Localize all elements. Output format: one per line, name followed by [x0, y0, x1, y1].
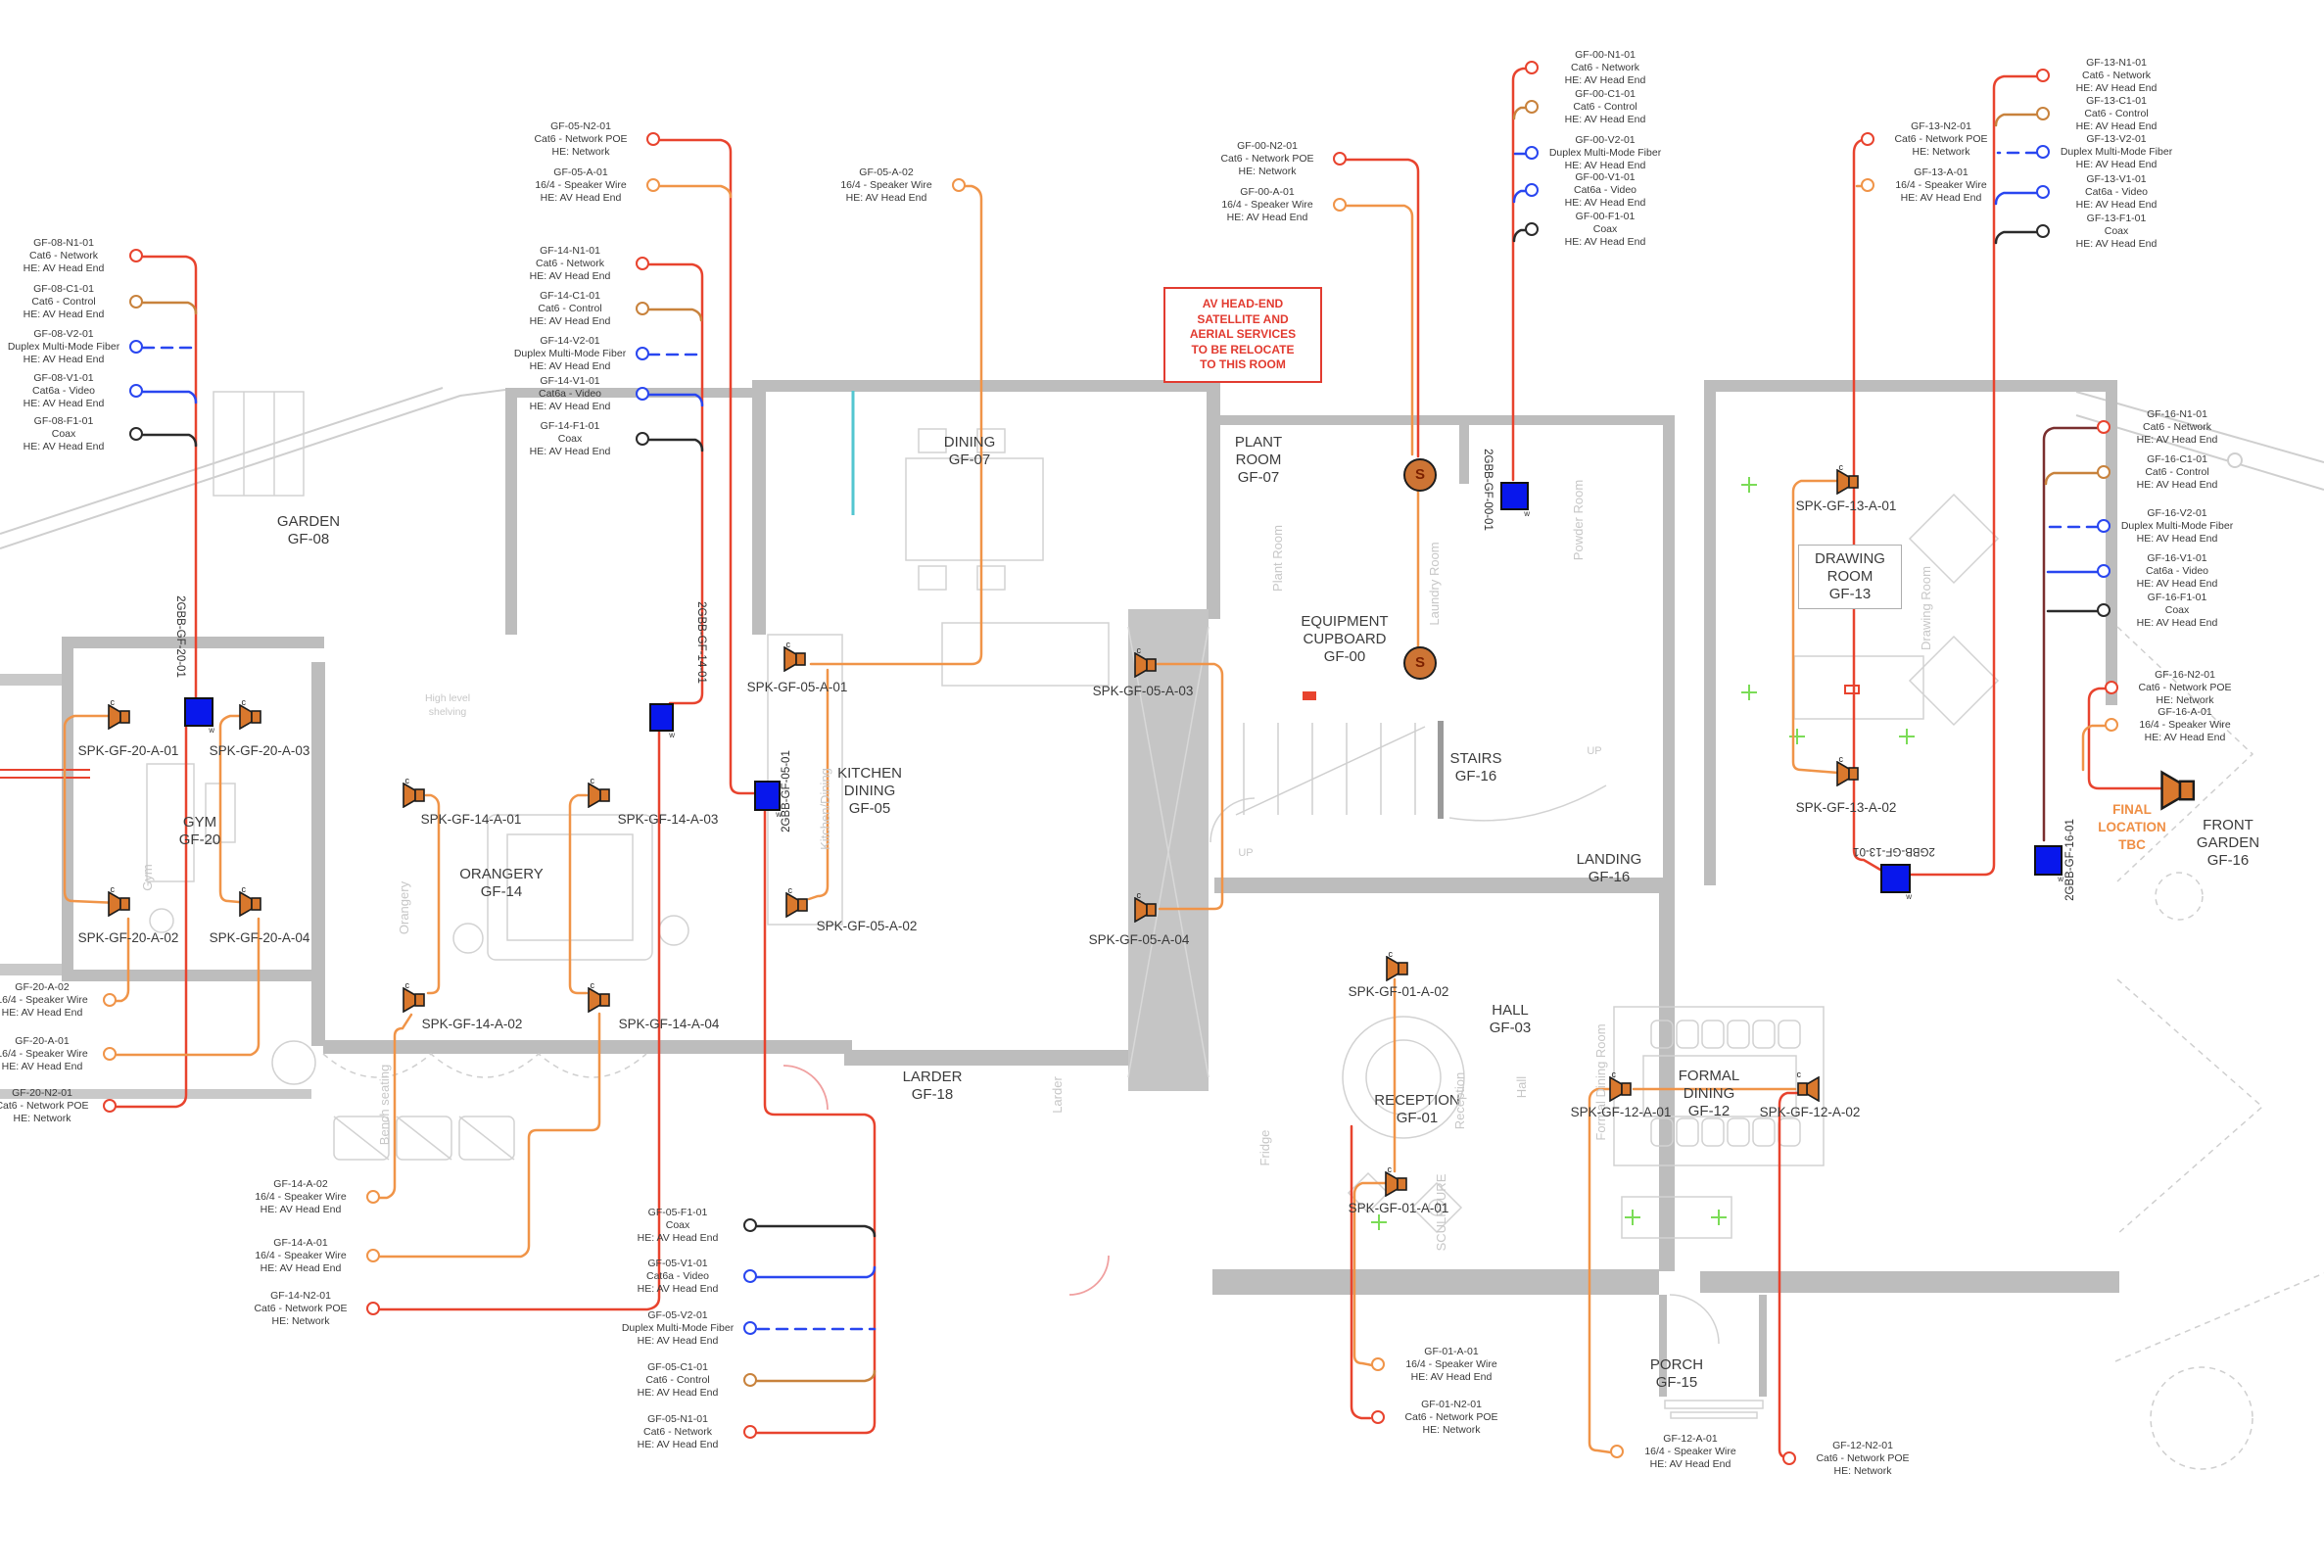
cable-terminal-icon [1861, 178, 1874, 192]
cable-terminal-icon [1525, 100, 1539, 114]
cable-callout[interactable]: GF-16-C1-01Cat6 - ControlHE: AV Head End [2112, 453, 2242, 492]
cable-callout[interactable]: GF-13-A-0116/4 - Speaker WireHE: AV Head… [1876, 166, 2006, 205]
cable-callout[interactable]: GF-13-F1-01CoaxHE: AV Head End [2052, 213, 2181, 251]
floorplan: GF-08-N1-01Cat6 - NetworkHE: AV Head End… [0, 0, 2324, 1568]
cable-terminal-icon [129, 427, 143, 441]
cable-terminal-icon [646, 178, 660, 192]
cable-terminal-icon [952, 178, 966, 192]
backbox[interactable]: w [1500, 482, 1529, 510]
speaker-label: SPK-GF-05-A-03 [1065, 684, 1221, 698]
cable-terminal-icon [1525, 61, 1539, 74]
cable-callout[interactable]: GF-00-C1-01Cat6 - ControlHE: AV Head End [1541, 88, 1670, 126]
speaker-c-marker: c [1388, 1164, 1393, 1174]
gray-label: Plant Room [1271, 475, 1285, 641]
note-box: AV HEAD-ENDSATELLITE AND AERIAL SERVICES… [1163, 287, 1322, 383]
final-location-note: FINAL LOCATION TBC [2068, 801, 2196, 854]
room-label-reception: RECEPTIONGF-01 [1309, 1092, 1525, 1127]
cable-terminal-icon [636, 347, 649, 360]
gray-label: Powder Room [1572, 437, 1586, 603]
speaker-label: SPK-GF-05-A-01 [719, 680, 876, 694]
cable-terminal-icon [2036, 69, 2050, 82]
room-label-kitchen-dining: KITCHENDININGGF-05 [762, 765, 977, 818]
speaker-label: SPK-GF-14-A-01 [393, 812, 549, 827]
cable-callout[interactable]: GF-16-V1-01Cat6a - VideoHE: AV Head End [2112, 552, 2242, 591]
cable-terminal-icon [743, 1218, 757, 1232]
cable-callout[interactable]: GF-08-V1-01Cat6a - VideoHE: AV Head End [0, 372, 127, 410]
cable-callout[interactable]: GF-20-N2-01Cat6 - Network POEHE: Network [0, 1087, 101, 1125]
cable-callout[interactable]: GF-14-N1-01Cat6 - NetworkHE: AV Head End [506, 245, 634, 283]
cable-callout[interactable]: GF-14-V2-01Duplex Multi-Mode FiberHE: AV… [506, 335, 634, 373]
cable-terminal-icon [2036, 145, 2050, 159]
cable-terminal-icon [2097, 465, 2111, 479]
cable-callout[interactable]: GF-05-N2-01Cat6 - Network POEHE: Network [517, 120, 644, 159]
furniture [147, 392, 1998, 1418]
cable-terminal-icon [1610, 1445, 1624, 1458]
cable-terminal-icon [1525, 222, 1539, 236]
gray-label: UP [1580, 744, 1609, 758]
backbox-label: 2GBB-GF-14-01 [695, 586, 707, 699]
gray-label: UP [1231, 846, 1260, 860]
cable-callout[interactable]: GF-14-C1-01Cat6 - ControlHE: AV Head End [506, 290, 634, 328]
cable-callout[interactable]: GF-08-V2-01Duplex Multi-Mode FiberHE: AV… [0, 328, 127, 366]
cable-callout[interactable]: GF-14-N2-01Cat6 - Network POEHE: Network [237, 1290, 364, 1328]
cable-callout[interactable]: GF-08-F1-01CoaxHE: AV Head End [0, 415, 127, 453]
cable-callout[interactable]: GF-14-A-0216/4 - Speaker WireHE: AV Head… [237, 1178, 364, 1216]
backbox-label: 2GBB-GF-05-01 [781, 735, 792, 848]
cable-callout[interactable]: GF-05-F1-01CoaxHE: AV Head End [614, 1207, 741, 1245]
cable-terminal-icon [366, 1249, 380, 1262]
room-label-gym: GYMGF-20 [92, 814, 308, 849]
cable-callout[interactable]: GF-05-V2-01Duplex Multi-Mode FiberHE: AV… [614, 1309, 741, 1348]
room-label-porch: PORCHGF-15 [1569, 1356, 1784, 1392]
cable-callout[interactable]: GF-05-A-0116/4 - Speaker WireHE: AV Head… [517, 166, 644, 205]
gray-label: Reception [1453, 1018, 1467, 1184]
cable-callout[interactable]: GF-05-N1-01Cat6 - NetworkHE: AV Head End [614, 1413, 741, 1451]
speaker-c-marker: c [1137, 890, 1142, 900]
speaker-label: SPK-GF-20-A-03 [181, 743, 338, 758]
speaker-c-marker: c [1389, 949, 1394, 959]
speaker-c-marker: c [405, 776, 410, 785]
backbox[interactable]: w [754, 781, 781, 811]
backbox-marker: w [209, 726, 214, 735]
speaker-c-marker: c [591, 980, 595, 990]
speaker-c-marker: c [788, 885, 793, 895]
cable-terminal-icon [129, 295, 143, 309]
gray-label: Larder [1051, 1012, 1065, 1178]
backbox-label: 2GBB-GF-20-01 [174, 580, 186, 693]
backbox-marker: w [669, 731, 675, 739]
cable-terminal-icon [1525, 146, 1539, 160]
cable-terminal-icon [129, 384, 143, 398]
backbox-label: 2GBB-GF-13-01 [1837, 845, 1951, 857]
cable-terminal-icon [2036, 107, 2050, 120]
cable-terminal-icon [103, 1099, 117, 1113]
cable-terminal-icon [2105, 718, 2118, 732]
cable-terminal-icon [646, 132, 660, 146]
cable-terminal-icon [743, 1321, 757, 1335]
control-wires [143, 108, 2098, 1381]
gray-label: Hall [1515, 1004, 1529, 1170]
cable-callout[interactable]: GF-14-A-0116/4 - Speaker WireHE: AV Head… [237, 1237, 364, 1275]
cable-terminal-icon [1782, 1451, 1796, 1465]
room-label-larder: LARDERGF-18 [825, 1069, 1040, 1104]
cable-callout[interactable]: GF-00-V2-01Duplex Multi-Mode FiberHE: AV… [1541, 134, 1670, 172]
cable-terminal-icon [103, 1047, 117, 1061]
cable-callout[interactable]: GF-00-F1-01CoaxHE: AV Head End [1541, 211, 1670, 249]
cable-callout[interactable]: GF-13-N1-01Cat6 - NetworkHE: AV Head End [2052, 57, 2181, 95]
cable-terminal-icon [1861, 132, 1874, 146]
cable-callout[interactable]: GF-20-A-0116/4 - Speaker WireHE: AV Head… [0, 1035, 101, 1073]
cable-callout[interactable]: GF-12-A-0116/4 - Speaker WireHE: AV Head… [1626, 1433, 1755, 1471]
backbox-marker: w [1524, 509, 1530, 518]
cable-callout[interactable]: GF-01-N2-01Cat6 - Network POEHE: Network [1387, 1399, 1516, 1437]
cable-callout[interactable]: GF-05-V1-01Cat6a - VideoHE: AV Head End [614, 1258, 741, 1296]
gray-label: Formal Dining Room [1594, 999, 1608, 1165]
speaker-label: SPK-GF-05-A-02 [788, 919, 945, 933]
cable-callout[interactable]: GF-00-N2-01Cat6 - Network POEHE: Network [1204, 140, 1331, 178]
speaker-c-marker: c [242, 884, 247, 894]
cable-terminal-icon [743, 1425, 757, 1439]
cable-callout[interactable]: GF-00-V1-01Cat6a - VideoHE: AV Head End [1541, 171, 1670, 210]
cable-callout[interactable]: GF-01-A-0116/4 - Speaker WireHE: AV Head… [1387, 1346, 1516, 1384]
speaker-label: SPK-GF-13-A-02 [1768, 800, 1924, 815]
speaker-label: SPK-GF-05-A-04 [1061, 932, 1217, 947]
room-label-orangery: ORANGERYGF-14 [394, 866, 609, 901]
gray-label: Kitchen/Dining [819, 726, 832, 892]
cable-callout[interactable]: GF-16-N1-01Cat6 - NetworkHE: AV Head End [2112, 408, 2242, 447]
cable-callout[interactable]: GF-13-V2-01Duplex Multi-Mode FiberHE: AV… [2052, 133, 2181, 171]
speaker-c-marker: c [1839, 462, 1844, 472]
cable-terminal-icon [2097, 603, 2111, 617]
speaker-label: SPK-GF-20-A-04 [181, 930, 338, 945]
room-label-plant-room: PLANTROOMGF-07 [1151, 434, 1366, 487]
room-label-garden: GARDENGF-08 [201, 513, 416, 548]
floorplan-linework-svg [0, 0, 2324, 1568]
speaker-c-marker: c [591, 776, 595, 785]
cable-terminal-icon [2105, 681, 2118, 694]
backbox[interactable]: w [1880, 864, 1911, 893]
room-label-stairs: STAIRSGF-16 [1368, 750, 1584, 785]
cable-callout[interactable]: GF-14-F1-01CoaxHE: AV Head End [506, 420, 634, 458]
cable-terminal-icon [636, 302, 649, 315]
cable-terminal-icon [1371, 1410, 1385, 1424]
fiber-wires [143, 153, 2098, 1329]
cable-callout[interactable]: GF-16-A-0116/4 - Speaker WireHE: AV Head… [2120, 706, 2250, 744]
cable-terminal-icon [1371, 1357, 1385, 1371]
cable-terminal-icon [1525, 183, 1539, 197]
cable-terminal-icon [743, 1373, 757, 1387]
cable-terminal-icon [1333, 152, 1347, 166]
speaker-c-marker: c [1137, 645, 1142, 655]
s-outlet[interactable]: S [1403, 646, 1437, 680]
speaker-label: SPK-GF-13-A-01 [1768, 499, 1924, 513]
gray-label: Laundry Room [1428, 500, 1442, 667]
gray-label: Bench seating [378, 1022, 392, 1188]
cable-terminal-icon [366, 1302, 380, 1315]
speaker-c-marker: c [1612, 1069, 1617, 1079]
speaker-c-marker: c [242, 697, 247, 707]
cable-callout[interactable]: GF-00-A-0116/4 - Speaker WireHE: AV Head… [1204, 186, 1331, 224]
cable-callout[interactable]: GF-05-A-0216/4 - Speaker WireHE: AV Head… [823, 166, 950, 205]
s-outlet[interactable]: S [1403, 458, 1437, 492]
speaker-label: SPK-GF-12-A-02 [1731, 1105, 1888, 1119]
cable-terminal-icon [366, 1190, 380, 1204]
cable-callout[interactable]: GF-13-N2-01Cat6 - Network POEHE: Network [1876, 120, 2006, 159]
cable-callout[interactable]: GF-05-C1-01Cat6 - ControlHE: AV Head End [614, 1361, 741, 1400]
speaker-label: SPK-GF-14-A-04 [591, 1017, 747, 1031]
cable-callout[interactable]: GF-20-A-0216/4 - Speaker WireHE: AV Head… [0, 981, 101, 1020]
speaker-c-marker: c [111, 884, 116, 894]
cable-terminal-icon [636, 257, 649, 270]
cable-callout[interactable]: GF-13-V1-01Cat6a - VideoHE: AV Head End [2052, 173, 2181, 212]
cable-callout[interactable]: GF-14-V1-01Cat6a - VideoHE: AV Head End [506, 375, 634, 413]
gray-label: High level shelving [420, 691, 475, 719]
gray-label: Drawing Room [1920, 525, 1933, 691]
cable-terminal-icon [743, 1269, 757, 1283]
cable-terminal-icon [103, 993, 117, 1007]
backbox[interactable]: w [184, 697, 213, 727]
speaker-label: SPK-GF-12-A-01 [1542, 1105, 1699, 1119]
speaker-label: SPK-GF-14-A-03 [590, 812, 746, 827]
gray-label: Fridge [1258, 1065, 1272, 1231]
cable-terminal-icon [2097, 564, 2111, 578]
backbox-marker: w [2058, 875, 2063, 883]
cable-callout[interactable]: GF-16-F1-01CoaxHE: AV Head End [2112, 592, 2242, 630]
cable-callout[interactable]: GF-13-C1-01Cat6 - ControlHE: AV Head End [2052, 95, 2181, 133]
cable-terminal-icon [2036, 224, 2050, 238]
cable-terminal-icon [636, 432, 649, 446]
speaker-c-marker: c [1839, 754, 1844, 764]
backbox[interactable]: w [649, 703, 674, 732]
cable-terminal-icon [129, 249, 143, 262]
room-label-drawing-room: DRAWINGROOMGF-13 [1798, 545, 1902, 609]
cable-callout[interactable]: GF-08-N1-01Cat6 - NetworkHE: AV Head End [0, 237, 127, 275]
room-label-landing: LANDINGGF-16 [1501, 851, 1717, 886]
cable-callout[interactable]: GF-16-N2-01Cat6 - Network POEHE: Network [2120, 669, 2250, 707]
cable-terminal-icon [1333, 198, 1347, 212]
cable-terminal-icon [2097, 519, 2111, 533]
cable-callout[interactable]: GF-16-V2-01Duplex Multi-Mode FiberHE: AV… [2112, 507, 2242, 546]
cable-terminal-icon [2036, 185, 2050, 199]
speaker-label: SPK-GF-01-A-02 [1320, 984, 1477, 999]
backbox-marker: w [1906, 892, 1912, 901]
speaker-label: SPK-GF-14-A-02 [394, 1017, 550, 1031]
backbox[interactable]: w [2034, 845, 2063, 876]
speaker-c-marker: c [111, 697, 116, 707]
cable-callout[interactable]: GF-08-C1-01Cat6 - ControlHE: AV Head End [0, 283, 127, 321]
cable-terminal-icon [129, 340, 143, 354]
room-label-dining: DININGGF-07 [862, 434, 1077, 469]
backbox-label: 2GBB-GF-00-01 [1482, 433, 1494, 546]
speaker-wires [65, 186, 2106, 1452]
speaker-c-marker: c [1797, 1069, 1802, 1079]
cable-callout[interactable]: GF-00-N1-01Cat6 - NetworkHE: AV Head End [1541, 49, 1670, 87]
cable-terminal-icon [2097, 420, 2111, 434]
cable-callout[interactable]: GF-12-N2-01Cat6 - Network POEHE: Network [1798, 1440, 1927, 1478]
speaker-label: SPK-GF-01-A-01 [1320, 1201, 1477, 1215]
speaker-c-marker: c [405, 980, 410, 990]
gray-label: Orangery [398, 825, 411, 991]
cable-terminal-icon [636, 387, 649, 401]
speaker-c-marker: c [786, 640, 791, 649]
room-label-hall: HALLGF-03 [1402, 1002, 1618, 1037]
